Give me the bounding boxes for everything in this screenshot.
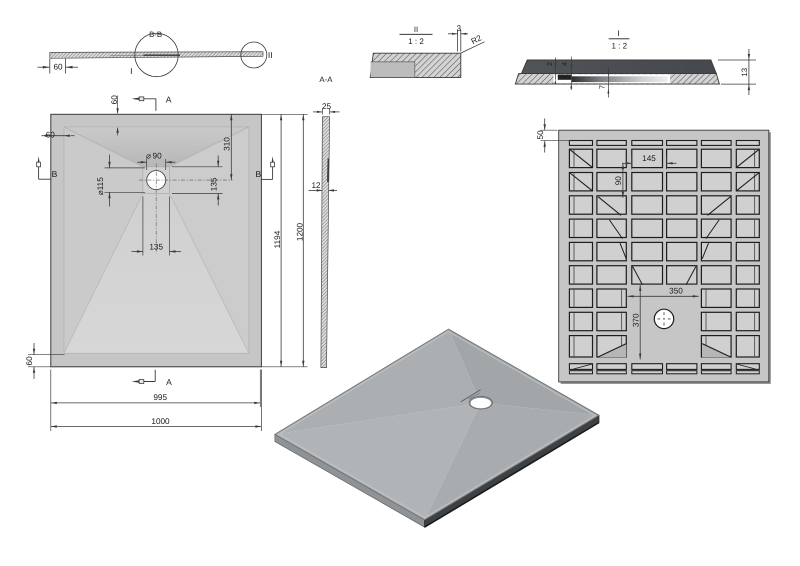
svg-text:60: 60 [25,356,34,366]
svg-text:7: 7 [598,85,607,89]
svg-text:310: 310 [223,137,232,151]
svg-text:1 : 2: 1 : 2 [612,42,628,51]
svg-text:A: A [166,377,172,387]
svg-text:50: 50 [536,130,545,140]
svg-text:2: 2 [545,62,554,66]
svg-text:1194: 1194 [273,230,282,248]
svg-text:135: 135 [149,242,163,251]
svg-text:II: II [268,50,273,60]
svg-text:370: 370 [632,313,641,327]
svg-text:I: I [130,66,132,76]
svg-text:1 : 2: 1 : 2 [408,37,424,46]
svg-text:I: I [618,29,620,38]
svg-text:A-A: A-A [319,75,333,84]
svg-text:12: 12 [311,181,321,190]
svg-text:90: 90 [614,176,623,186]
svg-text:13: 13 [740,68,749,77]
svg-text:B: B [52,169,58,179]
svg-text:II: II [414,25,418,34]
svg-text:1200: 1200 [295,222,304,241]
svg-text:⌀115: ⌀115 [96,177,105,195]
svg-text:995: 995 [153,393,167,402]
svg-text:60: 60 [110,95,119,105]
svg-text:1000: 1000 [151,417,170,426]
svg-text:135: 135 [209,177,218,191]
svg-text:25: 25 [322,102,332,111]
svg-text:60: 60 [53,62,63,71]
svg-text:B: B [255,169,261,179]
svg-text:60: 60 [46,130,56,139]
svg-text:⌀ 90: ⌀ 90 [146,151,162,160]
svg-text:4: 4 [560,62,569,66]
svg-text:145: 145 [642,154,656,163]
svg-text:A: A [166,94,172,104]
svg-text:350: 350 [669,287,683,296]
svg-text:3: 3 [457,24,462,33]
